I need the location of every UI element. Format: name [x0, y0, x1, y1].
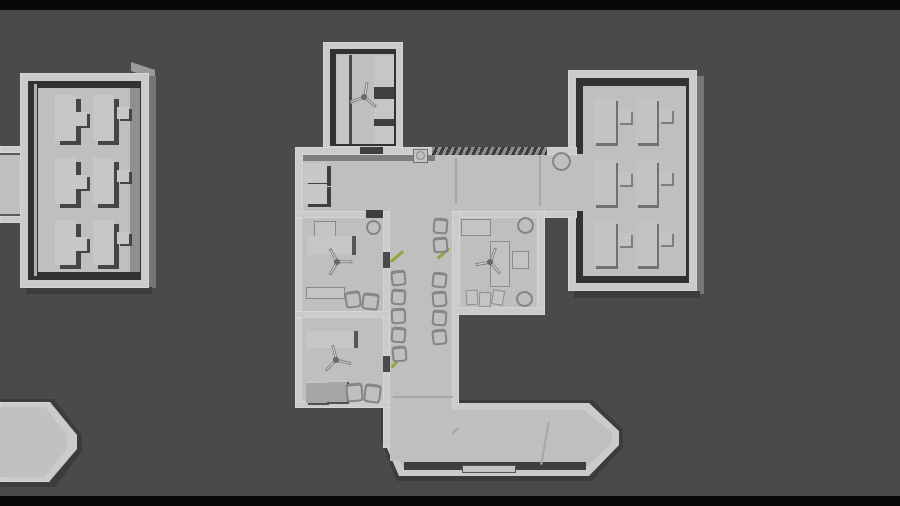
- basin-bowl: [416, 151, 425, 160]
- lounge-left-wall: [452, 211, 460, 315]
- office-upper-left-wall: [295, 218, 302, 318]
- office-chair: [345, 382, 364, 402]
- stub-top-wall: [0, 146, 22, 153]
- storage-cabinet: [304, 163, 327, 183]
- floor-seam: [393, 396, 453, 398]
- nightstand: [659, 109, 672, 122]
- storage-cabinet: [304, 184, 327, 204]
- bench: [306, 287, 345, 299]
- waiting-chair: [390, 288, 406, 305]
- west-dorm-wall-highlight: [34, 84, 37, 276]
- waiting-chair: [391, 345, 407, 362]
- hall-left-wall: [295, 147, 303, 218]
- shelf-gap: [374, 119, 394, 126]
- east-dorm-side-wall: [697, 76, 704, 294]
- crate: [327, 380, 347, 402]
- doorway-gap: [366, 210, 383, 218]
- waiting-chair: [390, 269, 407, 286]
- waiting-chair: [390, 326, 406, 343]
- waiting-chair: [431, 309, 447, 326]
- walkway-entrance-mark: [462, 465, 516, 473]
- couch-cushion: [465, 290, 478, 306]
- shelf: [374, 126, 394, 144]
- corner-plant: [366, 220, 381, 235]
- letterbox-bottom-bar: [0, 496, 900, 506]
- office-chair: [361, 292, 380, 311]
- nightstand: [117, 107, 129, 119]
- floor-seam: [539, 156, 541, 206]
- letterbox-top-bar: [0, 0, 900, 10]
- waiting-chair: [432, 236, 448, 253]
- east-dorm-base-shadow: [574, 291, 700, 298]
- shelf-gap: [374, 87, 394, 99]
- stub-bottom-wall: [0, 216, 22, 223]
- waiting-chair: [431, 328, 448, 345]
- nightstand: [659, 232, 672, 245]
- bunk: [594, 98, 616, 143]
- bunk: [93, 95, 114, 141]
- corridor-right-wall: [452, 307, 459, 405]
- corner-plant: [517, 217, 534, 234]
- nightstand: [73, 112, 87, 126]
- nightstand: [73, 175, 87, 189]
- waiting-chair: [431, 290, 447, 307]
- bunk: [636, 221, 657, 266]
- side-table: [512, 251, 529, 269]
- bunk: [636, 160, 657, 205]
- shelf: [374, 56, 394, 87]
- floor-seam: [455, 158, 457, 204]
- hall-bottom-wall: [295, 211, 368, 218]
- bunk: [636, 98, 657, 143]
- office-chair: [344, 290, 362, 309]
- nightstand: [117, 170, 129, 182]
- nightstand: [618, 172, 631, 185]
- west-dorm-base-shadow: [26, 287, 152, 294]
- waiting-chair: [431, 271, 448, 288]
- west-dorm-side-wall: [148, 76, 156, 288]
- waiting-chair: [391, 308, 407, 325]
- waiting-chair: [432, 217, 448, 234]
- side-table: [314, 221, 336, 237]
- office-lower-left-wall: [295, 318, 302, 408]
- bunk: [93, 158, 114, 204]
- lounge-bottom-wall: [452, 307, 545, 315]
- locker-hatch-strip: [432, 147, 547, 155]
- crate: [306, 381, 327, 403]
- nightstand: [117, 232, 129, 244]
- nightstand: [73, 237, 87, 251]
- bunk: [93, 220, 114, 265]
- round-table: [552, 152, 571, 171]
- nightstand: [618, 110, 631, 123]
- couch-cushion: [491, 289, 505, 306]
- doorway-gap: [360, 147, 383, 154]
- render-canvas[interactable]: [0, 0, 900, 506]
- hall-bottom-wall: [452, 211, 577, 218]
- shelf: [374, 99, 394, 119]
- couch-cushion: [479, 292, 492, 308]
- stub-floor: [0, 153, 22, 216]
- side-shelf: [461, 219, 491, 236]
- corner-plant: [516, 291, 533, 307]
- bunk: [594, 160, 616, 205]
- lounge-right-wall: [537, 211, 545, 315]
- corridor-left-wall: [383, 211, 390, 252]
- office-upper-bottom-wall: [295, 311, 390, 318]
- office-chair: [363, 383, 382, 404]
- west-dorm-floor-shadow: [130, 88, 140, 272]
- nightstand: [618, 233, 631, 246]
- bunk: [594, 221, 616, 266]
- nightstand: [659, 171, 672, 184]
- corridor-left-wall: [383, 372, 390, 448]
